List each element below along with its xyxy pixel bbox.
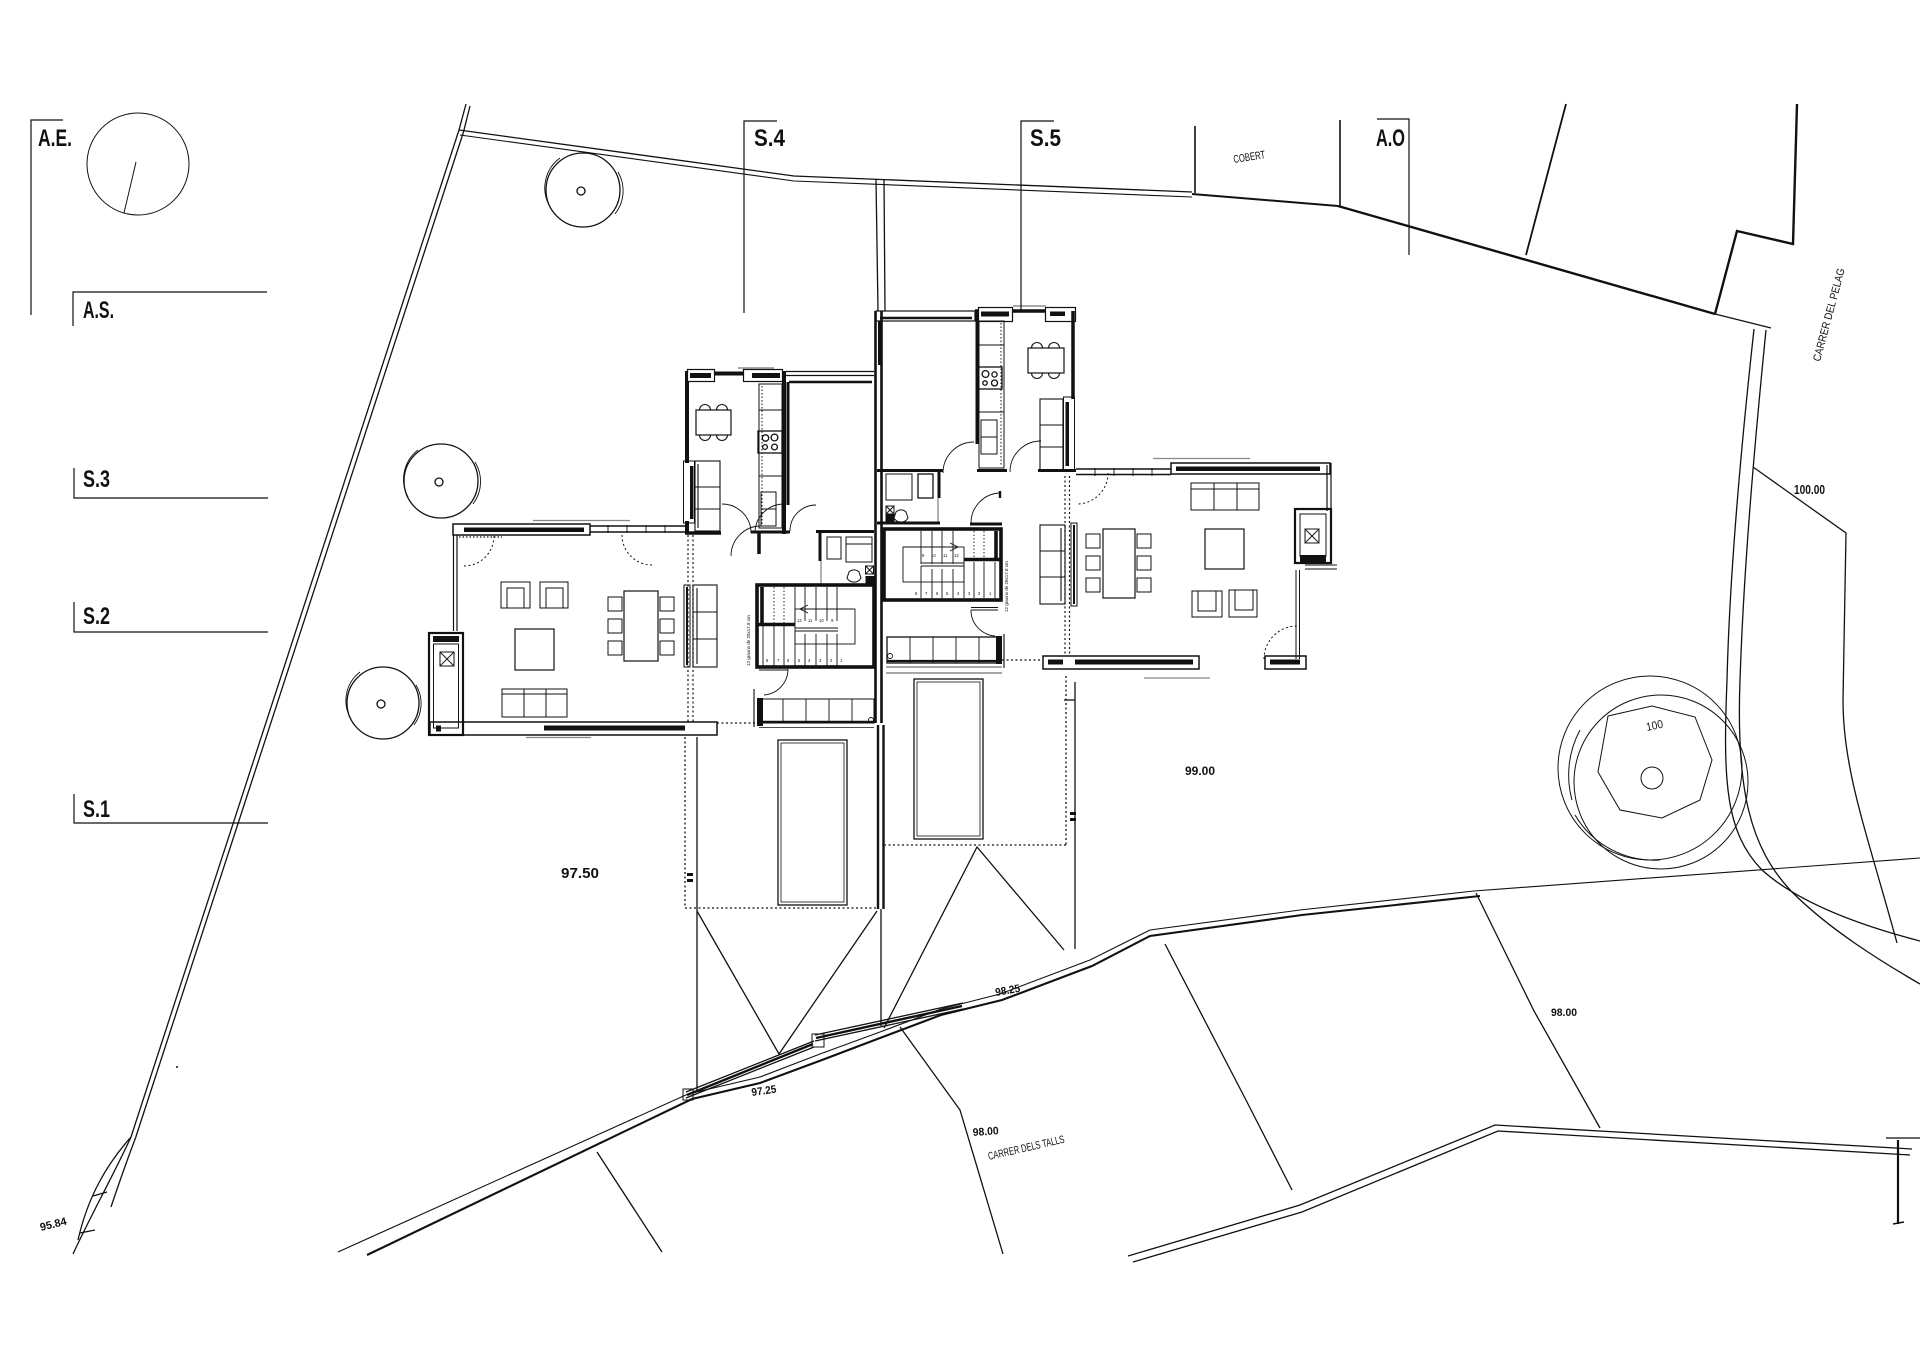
svg-text:S.5: S.5	[1030, 125, 1061, 152]
svg-text:99.00: 99.00	[1185, 764, 1215, 778]
svg-text:98.00: 98.00	[972, 1125, 999, 1139]
svg-text:100.00: 100.00	[1794, 482, 1825, 497]
svg-text:98.00: 98.00	[1551, 1007, 1577, 1019]
svg-text:11: 11	[808, 618, 813, 623]
svg-text:12 graons de 28x17.8 cm: 12 graons de 28x17.8 cm	[746, 615, 751, 666]
svg-text:A.E.: A.E.	[38, 125, 72, 152]
svg-text:12: 12	[954, 553, 959, 558]
svg-text:S.1: S.1	[83, 796, 110, 823]
svg-text:12 graons de 28x17.8 cm: 12 graons de 28x17.8 cm	[1004, 561, 1009, 612]
svg-text:10: 10	[819, 618, 824, 623]
svg-text:S.2: S.2	[83, 603, 110, 630]
svg-text:11: 11	[943, 553, 948, 558]
svg-text:A.S.: A.S.	[83, 297, 114, 324]
svg-text:S.4: S.4	[754, 125, 786, 152]
svg-text:A.O: A.O	[1376, 125, 1405, 152]
svg-text:S.3: S.3	[83, 466, 110, 493]
svg-text:12: 12	[797, 618, 802, 623]
svg-text:10: 10	[931, 553, 936, 558]
svg-text:97.50: 97.50	[561, 865, 599, 882]
